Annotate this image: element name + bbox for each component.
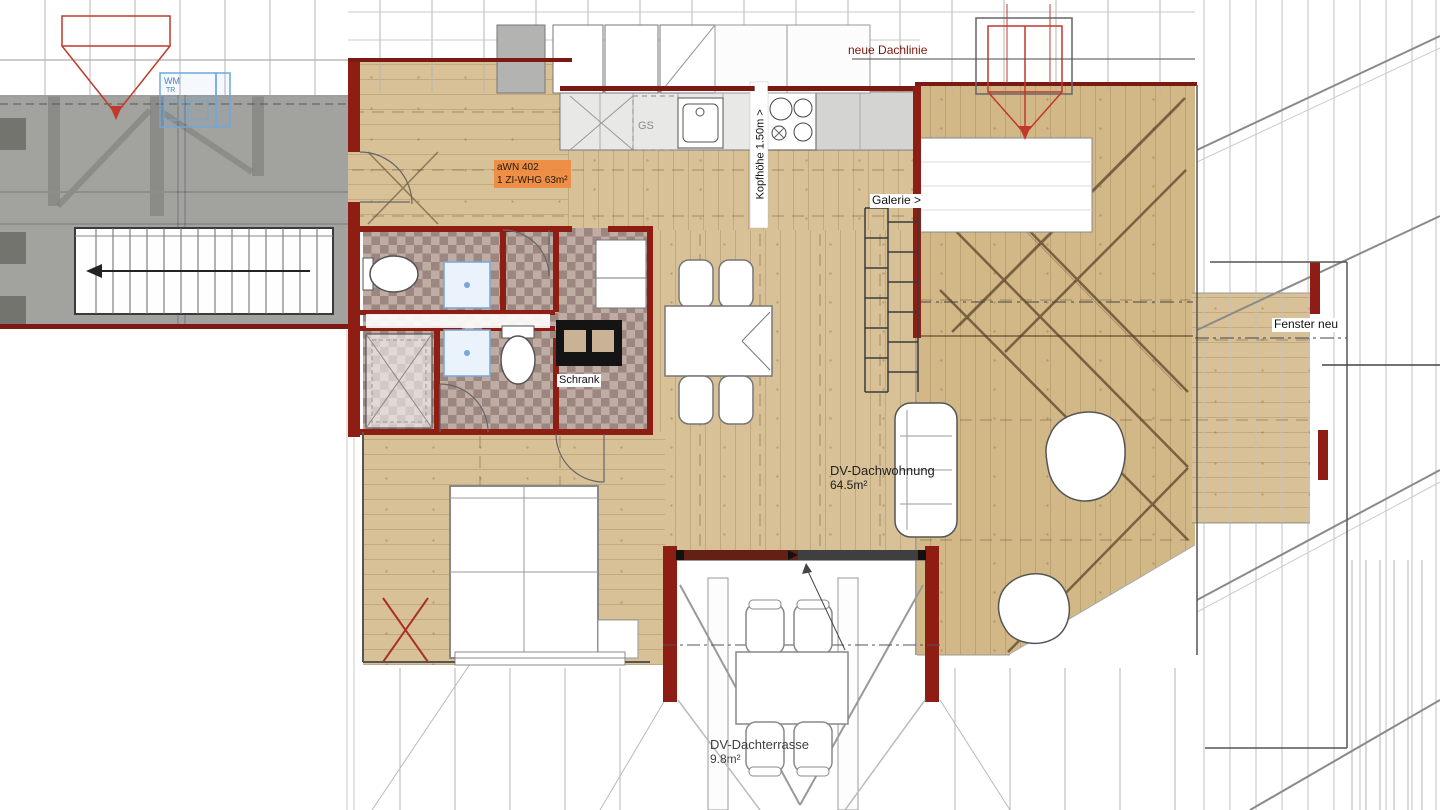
label-unit-number: aWN 402 <box>497 161 568 174</box>
label-schrank: Schrank <box>557 374 601 387</box>
label-galerie: Galerie > <box>870 194 923 208</box>
label-dachterrasse: DV-Dachterrasse 9.8m² <box>708 738 811 767</box>
label-dachterrasse-name: DV-Dachterrasse <box>710 738 809 753</box>
plan-labels: neue Dachlinie aWN 402 1 ZI-WHG 63m² Kop… <box>0 0 1440 810</box>
label-head-height: Kopfhöhe 1.50m > <box>755 82 768 226</box>
label-dachterrasse-area: 9.8m² <box>710 753 809 767</box>
label-dachwohnung-area: 64.5m² <box>830 479 935 493</box>
label-unit-tag: aWN 402 1 ZI-WHG 63m² <box>494 160 571 188</box>
label-neue-dachlinie: neue Dachlinie <box>846 44 929 58</box>
label-fenster-neu: Fenster neu <box>1272 318 1340 332</box>
floorplan-canvas: neue Dachlinie aWN 402 1 ZI-WHG 63m² Kop… <box>0 0 1440 810</box>
label-dachwohnung: DV-Dachwohnung 64.5m² <box>828 464 937 493</box>
label-dryer: TR <box>166 87 175 95</box>
label-unit-type: 1 ZI-WHG 63m² <box>497 174 568 187</box>
label-dachwohnung-name: DV-Dachwohnung <box>830 464 935 479</box>
label-dishwasher-gs: GS <box>636 120 656 133</box>
label-washing-machine: WM <box>164 76 180 86</box>
